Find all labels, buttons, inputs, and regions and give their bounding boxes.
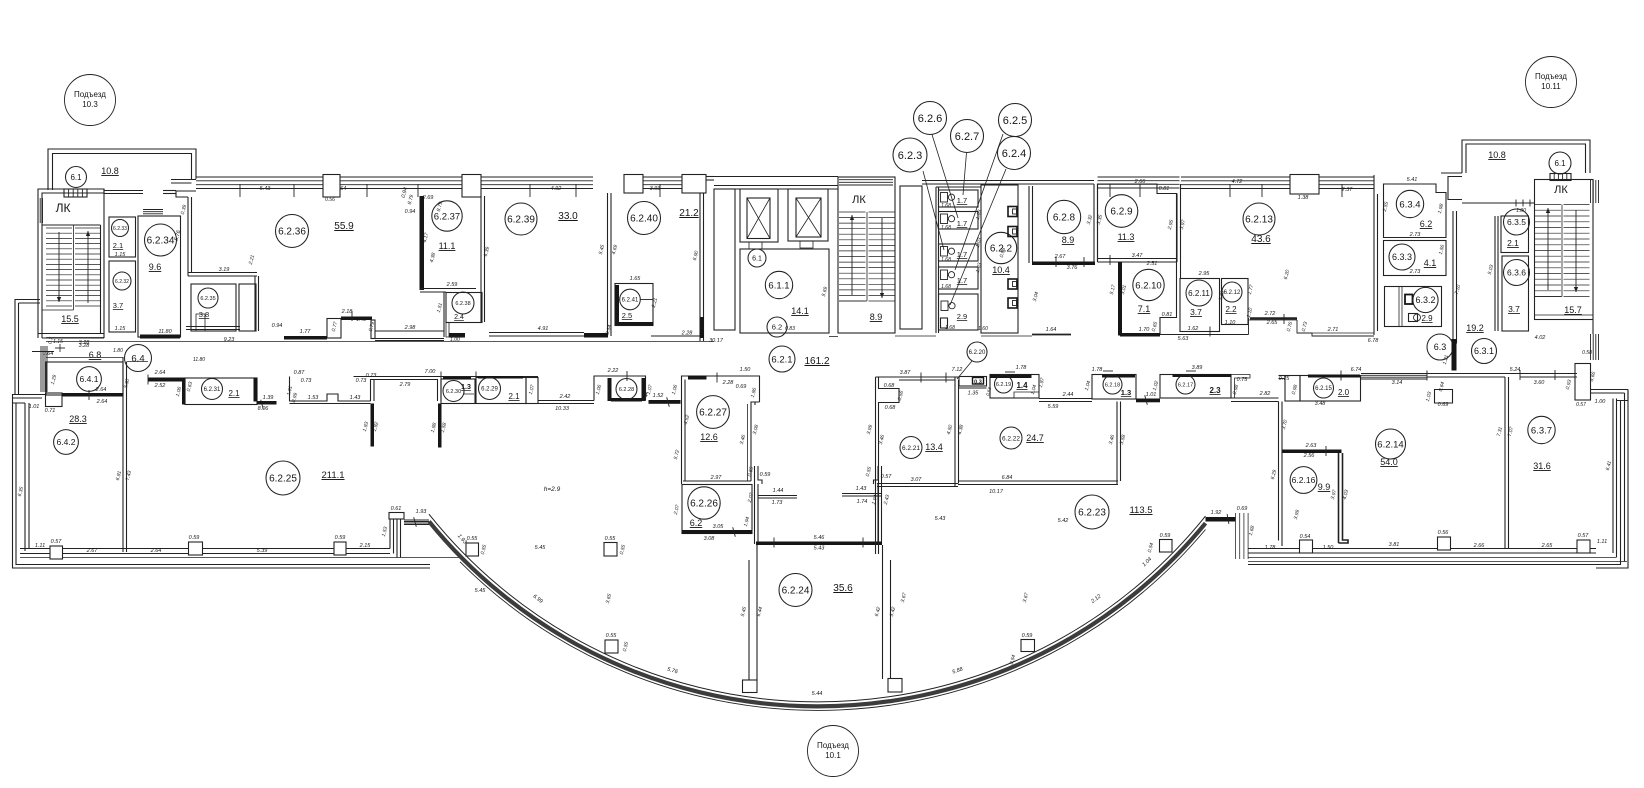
svg-text:5.43: 5.43 bbox=[935, 516, 947, 522]
svg-text:6.2.3: 6.2.3 bbox=[898, 150, 922, 162]
svg-text:6.2.39: 6.2.39 bbox=[507, 215, 535, 226]
svg-text:1.78: 1.78 bbox=[1016, 365, 1028, 371]
svg-text:3.7: 3.7 bbox=[1508, 304, 1520, 314]
svg-text:5.45: 5.45 bbox=[535, 545, 547, 551]
svg-text:7.1: 7.1 bbox=[1138, 304, 1151, 314]
svg-text:1.7: 1.7 bbox=[957, 276, 967, 285]
svg-text:2.4: 2.4 bbox=[454, 314, 464, 321]
svg-text:1.43: 1.43 bbox=[856, 486, 868, 492]
svg-text:2.56: 2.56 bbox=[1303, 453, 1316, 459]
svg-text:15.7: 15.7 bbox=[1564, 305, 1582, 315]
svg-text:6.2.41: 6.2.41 bbox=[622, 298, 639, 304]
svg-text:10.8: 10.8 bbox=[101, 166, 119, 176]
svg-text:0.3: 0.3 bbox=[974, 380, 982, 386]
svg-text:6.2.1: 6.2.1 bbox=[771, 354, 792, 365]
svg-text:35.6: 35.6 bbox=[833, 583, 853, 594]
svg-text:1.68: 1.68 bbox=[941, 203, 951, 209]
svg-text:2.1: 2.1 bbox=[508, 392, 520, 401]
svg-text:13.4: 13.4 bbox=[925, 442, 943, 452]
svg-text:1.60: 1.60 bbox=[978, 326, 988, 332]
svg-text:5.42: 5.42 bbox=[1058, 518, 1069, 524]
svg-text:1.78: 1.78 bbox=[1265, 545, 1277, 551]
svg-text:6.1: 6.1 bbox=[70, 173, 82, 182]
svg-text:0.59: 0.59 bbox=[1160, 533, 1171, 539]
svg-text:6.3.3: 6.3.3 bbox=[1392, 252, 1412, 262]
svg-text:3.05: 3.05 bbox=[713, 524, 725, 530]
svg-text:2.97: 2.97 bbox=[710, 475, 723, 481]
svg-text:161.2: 161.2 bbox=[804, 356, 829, 367]
svg-text:2.67: 2.67 bbox=[86, 548, 99, 554]
svg-text:2.2: 2.2 bbox=[1225, 305, 1237, 314]
svg-text:1.15: 1.15 bbox=[115, 326, 127, 332]
svg-text:3.89: 3.89 bbox=[1192, 365, 1203, 371]
svg-text:0.59: 0.59 bbox=[189, 535, 200, 541]
svg-text:ЛК: ЛК bbox=[1554, 184, 1568, 196]
svg-text:0.73: 0.73 bbox=[366, 373, 378, 379]
svg-text:6.2.18: 6.2.18 bbox=[1105, 383, 1120, 389]
svg-text:1.15: 1.15 bbox=[115, 252, 127, 258]
svg-text:2.22: 2.22 bbox=[607, 368, 619, 374]
svg-text:1.3: 1.3 bbox=[1121, 388, 1131, 397]
svg-text:6.2.33: 6.2.33 bbox=[113, 226, 127, 232]
svg-text:2.65: 2.65 bbox=[1541, 543, 1554, 549]
svg-text:1.50: 1.50 bbox=[1323, 545, 1335, 551]
svg-text:1.4: 1.4 bbox=[1016, 381, 1028, 390]
svg-text:0.56: 0.56 bbox=[325, 197, 335, 203]
svg-text:0.81: 0.81 bbox=[1159, 186, 1170, 192]
svg-text:10.3: 10.3 bbox=[82, 100, 98, 109]
svg-text:6.2.22: 6.2.22 bbox=[1002, 435, 1020, 442]
svg-text:6.2.36: 6.2.36 bbox=[278, 227, 306, 238]
svg-text:0.75: 0.75 bbox=[1237, 377, 1249, 383]
svg-text:1.44: 1.44 bbox=[773, 488, 784, 494]
svg-text:7.00: 7.00 bbox=[425, 369, 437, 375]
svg-text:6.2.10: 6.2.10 bbox=[1135, 280, 1161, 291]
svg-text:10.11: 10.11 bbox=[1541, 82, 1561, 91]
svg-text:6.2.6: 6.2.6 bbox=[918, 113, 942, 125]
svg-text:21.2: 21.2 bbox=[679, 208, 699, 219]
svg-text:0.55: 0.55 bbox=[467, 536, 479, 542]
svg-text:0.71: 0.71 bbox=[45, 408, 56, 414]
svg-text:0.59: 0.59 bbox=[760, 472, 771, 478]
svg-text:43.6: 43.6 bbox=[1251, 234, 1271, 245]
svg-text:0.54: 0.54 bbox=[1300, 534, 1311, 540]
svg-text:1.74: 1.74 bbox=[857, 499, 868, 505]
svg-text:1.50: 1.50 bbox=[740, 367, 752, 373]
svg-text:6.2.30: 6.2.30 bbox=[446, 389, 461, 395]
svg-text:6.3.6: 6.3.6 bbox=[1507, 268, 1526, 278]
svg-text:2.42: 2.42 bbox=[559, 394, 571, 400]
svg-text:2.44: 2.44 bbox=[1062, 392, 1074, 398]
svg-text:10.8: 10.8 bbox=[1488, 150, 1506, 160]
svg-text:6.2: 6.2 bbox=[1420, 219, 1433, 229]
svg-text:3.8: 3.8 bbox=[199, 310, 209, 319]
svg-text:5.45: 5.45 bbox=[475, 588, 487, 594]
svg-text:1.53: 1.53 bbox=[308, 395, 320, 401]
svg-text:6.2.38: 6.2.38 bbox=[455, 301, 470, 307]
svg-text:15.5: 15.5 bbox=[61, 314, 79, 324]
svg-text:0.56: 0.56 bbox=[1438, 530, 1450, 536]
svg-text:2.0: 2.0 bbox=[1338, 388, 1350, 397]
svg-text:6.2.40: 6.2.40 bbox=[630, 214, 658, 225]
svg-text:2.82: 2.82 bbox=[1259, 391, 1271, 397]
svg-text:6.2.28: 6.2.28 bbox=[619, 387, 634, 393]
svg-text:30.17: 30.17 bbox=[709, 338, 724, 344]
svg-text:6.4.1: 6.4.1 bbox=[80, 374, 99, 384]
svg-text:0.57: 0.57 bbox=[1576, 402, 1586, 408]
svg-text:0.94: 0.94 bbox=[272, 323, 283, 329]
svg-text:2.63: 2.63 bbox=[1305, 443, 1318, 449]
svg-text:2.28: 2.28 bbox=[722, 380, 735, 386]
svg-text:1.73: 1.73 bbox=[772, 500, 784, 506]
svg-text:6.2.14: 6.2.14 bbox=[1377, 439, 1403, 450]
svg-text:3.81: 3.81 bbox=[1389, 542, 1400, 548]
svg-text:6.3.2: 6.3.2 bbox=[1415, 295, 1435, 305]
svg-text:h=2.9: h=2.9 bbox=[544, 486, 561, 493]
svg-text:6.1.1: 6.1.1 bbox=[768, 280, 789, 291]
svg-text:6.2.26: 6.2.26 bbox=[690, 499, 718, 510]
svg-text:1.01: 1.01 bbox=[1146, 392, 1157, 398]
svg-text:8.9: 8.9 bbox=[870, 312, 883, 322]
svg-text:4.92: 4.92 bbox=[551, 186, 562, 192]
svg-text:0.55: 0.55 bbox=[606, 633, 618, 639]
svg-text:5.39: 5.39 bbox=[257, 548, 268, 554]
svg-text:1.92: 1.92 bbox=[1211, 510, 1222, 516]
svg-text:11.1: 11.1 bbox=[439, 241, 456, 251]
svg-text:3.7: 3.7 bbox=[1190, 307, 1202, 317]
svg-text:3.47: 3.47 bbox=[1132, 253, 1144, 259]
svg-text:1.39: 1.39 bbox=[263, 395, 274, 401]
svg-text:3.87: 3.87 bbox=[900, 370, 912, 376]
svg-text:211.1: 211.1 bbox=[321, 470, 344, 481]
svg-text:1.15: 1.15 bbox=[53, 339, 63, 345]
svg-text:1.78: 1.78 bbox=[1092, 367, 1104, 373]
svg-text:1.7: 1.7 bbox=[957, 219, 967, 228]
svg-text:1.43: 1.43 bbox=[356, 317, 366, 323]
svg-text:0.94: 0.94 bbox=[405, 209, 416, 215]
svg-text:6.2.12: 6.2.12 bbox=[1224, 290, 1241, 296]
svg-text:ЛК: ЛК bbox=[56, 201, 71, 215]
svg-text:4.91: 4.91 bbox=[538, 326, 549, 332]
svg-text:6.4.2: 6.4.2 bbox=[57, 437, 76, 447]
svg-text:1.10: 1.10 bbox=[1225, 320, 1237, 326]
svg-text:1.35: 1.35 bbox=[968, 391, 980, 397]
svg-text:12.6: 12.6 bbox=[700, 432, 718, 442]
svg-text:10.17: 10.17 bbox=[989, 489, 1004, 495]
svg-text:1.68: 1.68 bbox=[941, 257, 951, 263]
svg-text:2.3: 2.3 bbox=[1209, 386, 1221, 395]
svg-text:1.11: 1.11 bbox=[35, 543, 45, 549]
svg-text:3.14: 3.14 bbox=[1392, 380, 1403, 386]
svg-text:2.5: 2.5 bbox=[622, 311, 632, 320]
svg-text:1.43: 1.43 bbox=[350, 395, 362, 401]
svg-text:10.1: 10.1 bbox=[825, 751, 841, 760]
svg-text:3.76: 3.76 bbox=[1067, 265, 1079, 271]
svg-text:6.2.5: 6.2.5 bbox=[1003, 115, 1027, 127]
svg-text:5.43: 5.43 bbox=[814, 546, 826, 552]
svg-text:31.6: 31.6 bbox=[1533, 461, 1551, 471]
svg-text:0.59: 0.59 bbox=[335, 535, 346, 541]
svg-text:0.57: 0.57 bbox=[1578, 533, 1590, 539]
svg-text:2.1: 2.1 bbox=[1507, 238, 1519, 248]
svg-text:10.4: 10.4 bbox=[992, 265, 1010, 275]
svg-text:1.77: 1.77 bbox=[300, 329, 312, 335]
svg-text:ЛК: ЛК bbox=[852, 194, 866, 206]
svg-text:6.2.32: 6.2.32 bbox=[115, 279, 129, 285]
svg-text:0.57: 0.57 bbox=[51, 539, 63, 545]
svg-text:2.64: 2.64 bbox=[154, 370, 166, 376]
svg-text:6.2.4: 6.2.4 bbox=[1002, 148, 1026, 160]
svg-text:2.37: 2.37 bbox=[1341, 187, 1354, 193]
svg-text:2.72: 2.72 bbox=[1264, 311, 1276, 317]
svg-text:2.18: 2.18 bbox=[341, 309, 354, 315]
svg-text:0.83: 0.83 bbox=[785, 326, 795, 332]
svg-text:54.0: 54.0 bbox=[1380, 457, 1398, 467]
svg-text:1.11: 1.11 bbox=[1597, 539, 1607, 545]
svg-text:1.68: 1.68 bbox=[941, 284, 951, 290]
svg-text:3.93: 3.93 bbox=[650, 186, 662, 192]
svg-text:0.73: 0.73 bbox=[356, 378, 368, 384]
svg-text:2.15: 2.15 bbox=[359, 543, 372, 549]
svg-text:2.59: 2.59 bbox=[446, 282, 458, 288]
svg-text:4.02: 4.02 bbox=[1535, 335, 1546, 341]
svg-text:3.08: 3.08 bbox=[704, 536, 716, 542]
svg-text:5.63: 5.63 bbox=[1178, 336, 1190, 342]
svg-text:28.3: 28.3 bbox=[69, 414, 87, 424]
svg-text:6.3: 6.3 bbox=[1434, 342, 1447, 352]
svg-text:6.78: 6.78 bbox=[1368, 338, 1380, 344]
svg-text:2.64: 2.64 bbox=[150, 548, 162, 554]
svg-text:10.33: 10.33 bbox=[555, 406, 570, 412]
svg-text:2.1: 2.1 bbox=[113, 241, 123, 250]
svg-text:2.9: 2.9 bbox=[957, 312, 967, 321]
svg-text:0.68: 0.68 bbox=[885, 405, 897, 411]
svg-text:1.52: 1.52 bbox=[653, 393, 664, 399]
svg-text:6.2.31: 6.2.31 bbox=[204, 387, 221, 393]
svg-text:2.73: 2.73 bbox=[1409, 232, 1422, 238]
svg-text:0.68: 0.68 bbox=[884, 383, 896, 389]
svg-text:1.62: 1.62 bbox=[1188, 326, 1199, 332]
svg-text:5.41: 5.41 bbox=[1407, 177, 1418, 183]
svg-text:2.98: 2.98 bbox=[404, 325, 417, 331]
svg-text:8.9: 8.9 bbox=[1062, 235, 1075, 245]
svg-text:Подъезд: Подъезд bbox=[1535, 72, 1567, 81]
svg-text:2.51: 2.51 bbox=[1146, 261, 1158, 267]
svg-text:1.68: 1.68 bbox=[941, 225, 951, 231]
svg-text:33.0: 33.0 bbox=[558, 211, 578, 222]
svg-text:4.72: 4.72 bbox=[1232, 179, 1243, 185]
svg-text:5.43: 5.43 bbox=[260, 186, 272, 192]
svg-text:6.2.25: 6.2.25 bbox=[269, 474, 297, 485]
svg-text:1.93: 1.93 bbox=[416, 509, 428, 515]
svg-text:5.59: 5.59 bbox=[1048, 404, 1059, 410]
svg-text:6.2.17: 6.2.17 bbox=[1178, 383, 1193, 389]
svg-text:6.2.23: 6.2.23 bbox=[1078, 508, 1106, 519]
svg-text:0.59: 0.59 bbox=[1022, 633, 1033, 639]
svg-text:0.64: 0.64 bbox=[43, 351, 54, 357]
svg-text:1.7: 1.7 bbox=[957, 196, 967, 205]
svg-text:Подъезд: Подъезд bbox=[817, 741, 849, 750]
svg-text:9.9: 9.9 bbox=[1318, 482, 1331, 492]
svg-text:14.1: 14.1 bbox=[791, 306, 809, 316]
svg-text:1.68: 1.68 bbox=[945, 325, 955, 331]
svg-text:0.73: 0.73 bbox=[301, 378, 313, 384]
svg-text:3.7: 3.7 bbox=[113, 301, 123, 310]
svg-text:19.2: 19.2 bbox=[1466, 323, 1484, 333]
svg-text:0.87: 0.87 bbox=[294, 370, 306, 376]
svg-text:2.67: 2.67 bbox=[1054, 254, 1067, 260]
svg-text:6.2.27: 6.2.27 bbox=[699, 408, 727, 419]
svg-text:2.66: 2.66 bbox=[1473, 543, 1486, 549]
svg-text:7.12: 7.12 bbox=[952, 367, 963, 373]
svg-text:6.3.4: 6.3.4 bbox=[1399, 199, 1420, 210]
svg-text:3.60: 3.60 bbox=[1534, 380, 1546, 386]
svg-text:6.2.19: 6.2.19 bbox=[996, 382, 1011, 388]
svg-text:1.38: 1.38 bbox=[1298, 195, 1310, 201]
svg-text:6.2.16: 6.2.16 bbox=[1292, 475, 1316, 485]
svg-text:6.2.15: 6.2.15 bbox=[1315, 386, 1332, 392]
svg-text:6.2.13: 6.2.13 bbox=[1245, 215, 1273, 226]
svg-text:0.61: 0.61 bbox=[391, 506, 402, 512]
svg-text:6.2.34: 6.2.34 bbox=[147, 236, 175, 247]
svg-text:3.48: 3.48 bbox=[1315, 401, 1327, 407]
svg-text:6.1: 6.1 bbox=[1554, 159, 1566, 168]
svg-text:1.3: 1.3 bbox=[461, 384, 471, 391]
svg-text:11.3: 11.3 bbox=[1118, 232, 1135, 242]
svg-text:6.2.29: 6.2.29 bbox=[481, 387, 498, 393]
svg-text:5.46: 5.46 bbox=[814, 535, 826, 541]
svg-text:6.2.21: 6.2.21 bbox=[902, 445, 920, 452]
svg-text:0.69: 0.69 bbox=[1237, 506, 1248, 512]
svg-text:11.80: 11.80 bbox=[158, 329, 172, 335]
svg-text:2.64: 2.64 bbox=[95, 387, 107, 393]
svg-text:2.95: 2.95 bbox=[1198, 271, 1211, 277]
svg-text:0.55: 0.55 bbox=[605, 536, 617, 542]
svg-text:113.5: 113.5 bbox=[1129, 505, 1152, 516]
svg-text:1.70: 1.70 bbox=[1139, 327, 1151, 333]
svg-text:0.69: 0.69 bbox=[736, 384, 747, 390]
svg-text:6.4: 6.4 bbox=[131, 353, 144, 364]
svg-text:6.2.9: 6.2.9 bbox=[1110, 207, 1133, 218]
svg-text:2.1: 2.1 bbox=[228, 389, 240, 398]
svg-text:3.07: 3.07 bbox=[911, 477, 923, 483]
svg-text:6.2.8: 6.2.8 bbox=[1053, 213, 1076, 224]
svg-text:6.74: 6.74 bbox=[1351, 367, 1362, 373]
svg-text:0.81: 0.81 bbox=[1162, 312, 1173, 318]
svg-text:6.2.20: 6.2.20 bbox=[969, 350, 986, 356]
svg-text:6.1: 6.1 bbox=[752, 256, 762, 263]
svg-text:0.57: 0.57 bbox=[881, 474, 893, 480]
svg-text:2.65: 2.65 bbox=[1266, 320, 1279, 326]
svg-text:6.2.37: 6.2.37 bbox=[434, 211, 460, 222]
svg-text:55.9: 55.9 bbox=[334, 221, 354, 232]
svg-text:2.71: 2.71 bbox=[1327, 327, 1339, 333]
svg-text:1.00: 1.00 bbox=[1595, 399, 1607, 405]
svg-text:2.73: 2.73 bbox=[1409, 269, 1422, 275]
svg-text:2.69: 2.69 bbox=[422, 195, 434, 201]
svg-text:6.2: 6.2 bbox=[690, 518, 703, 528]
svg-text:1.65: 1.65 bbox=[630, 276, 642, 282]
svg-text:6.8: 6.8 bbox=[89, 350, 102, 360]
svg-text:1.80: 1.80 bbox=[113, 348, 123, 354]
svg-text:1.7: 1.7 bbox=[957, 250, 967, 259]
svg-text:4.1: 4.1 bbox=[1424, 258, 1437, 268]
svg-text:3.28: 3.28 bbox=[79, 343, 91, 349]
svg-text:24.7: 24.7 bbox=[1026, 433, 1044, 443]
svg-text:6.3.1: 6.3.1 bbox=[1474, 346, 1494, 356]
svg-text:2.64: 2.64 bbox=[96, 399, 108, 405]
svg-text:0.58: 0.58 bbox=[1582, 350, 1592, 356]
svg-text:1.01: 1.01 bbox=[29, 404, 40, 410]
svg-text:9.6: 9.6 bbox=[149, 262, 162, 272]
svg-text:6.2: 6.2 bbox=[772, 323, 782, 332]
svg-text:6.3.5: 6.3.5 bbox=[1507, 217, 1526, 227]
svg-text:1.64: 1.64 bbox=[1046, 327, 1057, 333]
svg-text:6.2.7: 6.2.7 bbox=[955, 131, 979, 143]
svg-text:6.2.24: 6.2.24 bbox=[782, 586, 810, 597]
svg-text:1.00: 1.00 bbox=[450, 337, 460, 343]
svg-text:Подъезд: Подъезд bbox=[74, 90, 106, 99]
svg-text:9.23: 9.23 bbox=[224, 337, 236, 343]
svg-text:6.3.7: 6.3.7 bbox=[1531, 425, 1552, 436]
svg-text:11.80: 11.80 bbox=[193, 357, 205, 363]
svg-text:6.2.11: 6.2.11 bbox=[1188, 289, 1210, 298]
svg-text:6.84: 6.84 bbox=[1002, 475, 1013, 481]
svg-text:5.44: 5.44 bbox=[812, 691, 823, 697]
svg-text:2.79: 2.79 bbox=[399, 382, 411, 388]
svg-text:0.69: 0.69 bbox=[1438, 402, 1449, 408]
svg-text:5.24: 5.24 bbox=[1510, 367, 1521, 373]
svg-text:6.2.35: 6.2.35 bbox=[200, 296, 215, 302]
svg-text:2.9: 2.9 bbox=[1421, 314, 1433, 323]
svg-text:2.52: 2.52 bbox=[154, 383, 166, 389]
